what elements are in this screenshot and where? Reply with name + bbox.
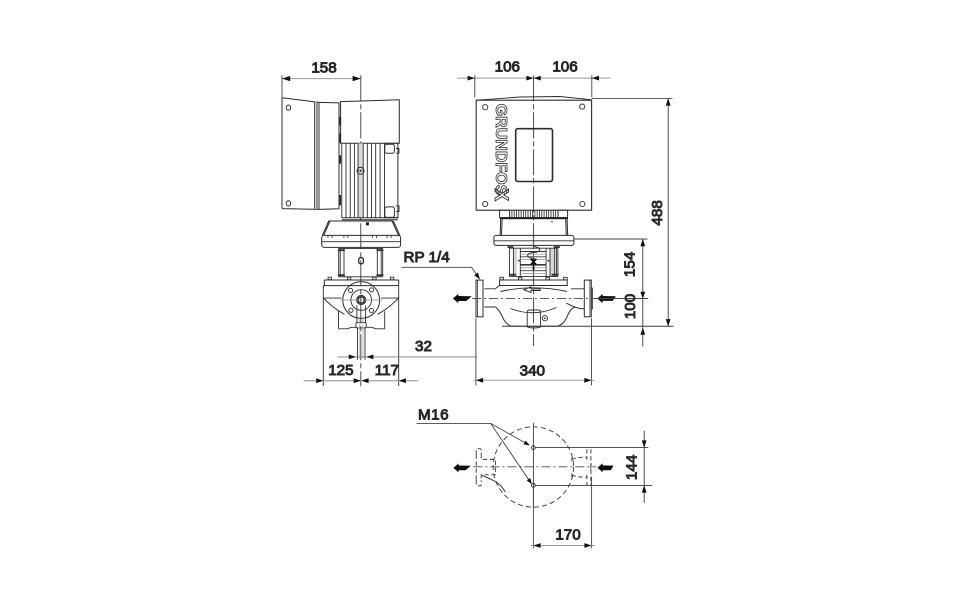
svg-text:340: 340: [520, 363, 545, 380]
svg-text:144: 144: [624, 455, 641, 480]
svg-text:32: 32: [415, 338, 432, 355]
svg-text:X: X: [490, 188, 511, 201]
svg-text:154: 154: [621, 252, 638, 277]
svg-text:125: 125: [328, 362, 353, 379]
svg-text:RP 1/4: RP 1/4: [404, 249, 450, 266]
svg-text:158: 158: [311, 60, 336, 77]
svg-text:106: 106: [552, 58, 577, 75]
svg-text:117: 117: [375, 362, 399, 379]
svg-text:488: 488: [649, 200, 666, 225]
svg-text:GRUNDFOS: GRUNDFOS: [492, 104, 509, 196]
svg-text:106: 106: [495, 58, 520, 75]
svg-text:M16: M16: [418, 406, 449, 423]
svg-text:170: 170: [555, 527, 580, 544]
svg-text:100: 100: [622, 294, 639, 319]
